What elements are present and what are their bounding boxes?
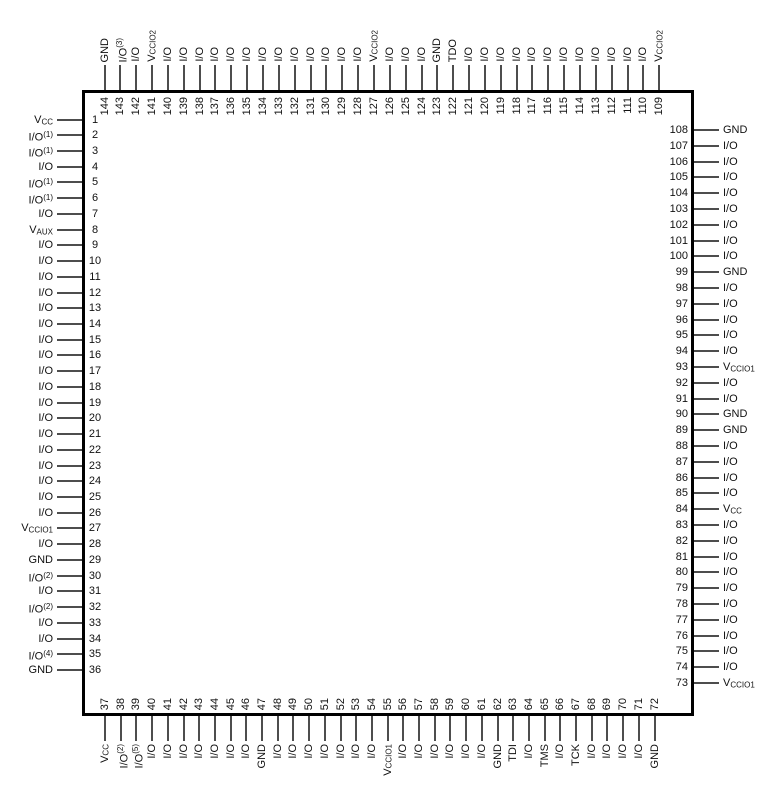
pin-79-lead [694,587,719,589]
pin-112-label: I/O [605,47,619,62]
pin-105-number: 105 [668,169,688,185]
pin-9-label: I/O [0,237,53,253]
pin-21-number: 21 [86,426,104,442]
pin-95-number: 95 [668,327,688,343]
pin-26-number: 26 [86,505,104,521]
pin-43-number: 43 [192,698,206,710]
pin-46-label: I/O [239,744,253,759]
pin-19-number: 19 [86,395,104,411]
pin-25-lead [57,496,82,498]
pin-95-lead [694,334,719,336]
pin-46-number: 46 [239,698,253,710]
pin-5-lead [57,181,82,183]
pin-83-number: 83 [668,517,688,533]
pin-69-lead [606,716,608,741]
pin-12-lead [57,292,82,294]
pin-8-lead [57,229,82,231]
pin-141-number: 141 [145,97,159,115]
pin-27-label: VCCIO1 [0,520,53,536]
pin-78-number: 78 [668,596,688,612]
pin-88-number: 88 [668,438,688,454]
pin-76-lead [694,635,719,637]
pin-106-number: 106 [668,154,688,170]
pin-70-lead [622,716,624,741]
pin-138-lead [199,65,201,90]
pin-49-lead [292,716,294,741]
pin-102-label: I/O [723,217,738,233]
pin-35-label: I/O(4) [0,646,53,662]
pin-9-lead [57,244,82,246]
pin-143-lead [119,65,121,90]
pin-58-lead [434,716,436,741]
pin-93-lead [694,366,719,368]
pin-41-number: 41 [161,698,175,710]
pin-109-number: 109 [652,97,666,115]
pin-66-number: 66 [553,698,567,710]
pin-86-number: 86 [668,470,688,486]
pin-124-label: I/O [415,47,429,62]
pin-62-label: GND [491,744,505,768]
pin-109-label: VCCIO2 [652,30,666,62]
pin-86-label: I/O [723,470,738,486]
pin-54-label: I/O [365,744,379,759]
pin-34-label: I/O [0,631,53,647]
pin-16-label: I/O [0,347,53,363]
pin-137-number: 137 [208,97,222,115]
pin-100-label: I/O [723,248,738,264]
pin-88-lead [694,445,719,447]
pin-48-label: I/O [271,744,285,759]
pin-15-label: I/O [0,332,53,348]
pin-79-number: 79 [668,580,688,596]
pin-73-label: VCCIO1 [723,675,755,691]
pin-92-label: I/O [723,375,738,391]
pin-75-label: I/O [723,643,738,659]
pin-61-lead [481,716,483,741]
pin-18-lead [57,386,82,388]
pin-32-label: I/O(2) [0,599,53,615]
pin-64-number: 64 [522,698,536,710]
pin-98-number: 98 [668,280,688,296]
pin-123-label: GND [430,38,444,62]
pin-93-number: 93 [668,359,688,375]
pin-56-lead [402,716,404,741]
pin-37-lead [104,716,106,741]
pin-84-number: 84 [668,501,688,517]
pin-42-label: I/O [177,744,191,759]
pin-53-label: I/O [349,744,363,759]
pin-124-number: 124 [415,97,429,115]
pin-135-number: 135 [240,97,254,115]
pin-63-lead [512,716,514,741]
pin-21-label: I/O [0,426,53,442]
pin-61-number: 61 [475,698,489,710]
pin-39-lead [135,716,137,741]
pin-5-number: 5 [86,174,104,190]
pin-24-number: 24 [86,473,104,489]
pin-85-lead [694,492,719,494]
pin-116-number: 116 [541,97,555,115]
pin-52-number: 52 [334,698,348,710]
pin-9-number: 9 [86,237,104,253]
pin-63-label: TDI [506,744,520,762]
pin-130-label: I/O [319,47,333,62]
pin-62-lead [497,716,499,741]
pin-139-lead [183,65,185,90]
pin-56-number: 56 [396,698,410,710]
pin-105-label: I/O [723,169,738,185]
pin-121-label: I/O [462,47,476,62]
pin-68-lead [591,716,593,741]
pin-66-label: I/O [553,744,567,759]
pin-77-label: I/O [723,612,738,628]
pin-143-label: I/O(3) [113,38,127,62]
pin-20-number: 20 [86,410,104,426]
pin-4-lead [57,166,82,168]
pin-70-number: 70 [616,698,630,710]
pin-107-lead [694,145,719,147]
pin-80-lead [694,571,719,573]
pin-104-label: I/O [723,185,738,201]
pin-98-label: I/O [723,280,738,296]
pin-17-label: I/O [0,363,53,379]
pin-37-number: 37 [98,698,112,710]
pin-30-label: I/O(2) [0,568,53,584]
pin-140-number: 140 [161,97,175,115]
pin-71-lead [638,716,640,741]
pin-111-label: I/O [621,47,635,62]
pin-71-number: 71 [632,698,646,710]
pin-51-number: 51 [318,698,332,710]
pin-118-number: 118 [510,97,524,115]
pin-68-label: I/O [585,744,599,759]
pin-74-label: I/O [723,659,738,675]
pin-46-lead [245,716,247,741]
pin-85-number: 85 [668,485,688,501]
pin-116-lead [547,65,549,90]
pin-33-number: 33 [86,615,104,631]
pin-91-lead [694,398,719,400]
pin-55-lead [387,716,389,741]
pin-33-lead [57,622,82,624]
pin-79-label: I/O [723,580,738,596]
pin-128-label: I/O [351,47,365,62]
pin-110-number: 110 [636,97,650,115]
pin-7-lead [57,213,82,215]
pin-100-lead [694,255,719,257]
pin-101-number: 101 [668,233,688,249]
pin-15-number: 15 [86,332,104,348]
pin-94-lead [694,350,719,352]
pin-38-label: I/O(2) [114,744,128,768]
pin-23-lead [57,465,82,467]
pin-131-lead [310,65,312,90]
pin-61-label: I/O [475,744,489,759]
pin-17-lead [57,370,82,372]
pin-20-label: I/O [0,410,53,426]
pin-36-number: 36 [86,662,104,678]
pin-144-lead [104,65,106,90]
pin-40-number: 40 [145,698,159,710]
pin-77-lead [694,619,719,621]
pin-13-number: 13 [86,300,104,316]
pin-130-lead [325,65,327,90]
pin-55-number: 55 [381,698,395,710]
pin-29-label: GND [0,552,53,568]
pin-99-number: 99 [668,264,688,280]
pin-2-lead [57,134,82,136]
pin-123-lead [436,65,438,90]
pin-14-lead [57,323,82,325]
pin-138-label: I/O [193,47,207,62]
pin-129-lead [341,65,343,90]
pin-122-lead [452,65,454,90]
pin-135-lead [246,65,248,90]
pin-99-label: GND [723,264,747,280]
pin-96-label: I/O [723,312,738,328]
pin-134-label: I/O [256,47,270,62]
pin-138-number: 138 [193,97,207,115]
pin-81-label: I/O [723,549,738,565]
pin-57-number: 57 [412,698,426,710]
pin-65-lead [544,716,546,741]
pin-40-label: I/O [145,744,159,759]
pin-86-lead [694,477,719,479]
pin-106-label: I/O [723,154,738,170]
pin-92-lead [694,382,719,384]
pin-29-number: 29 [86,552,104,568]
pin-22-number: 22 [86,442,104,458]
pin-109-lead [658,65,660,90]
pin-137-label: I/O [208,47,222,62]
pin-98-lead [694,287,719,289]
pin-63-number: 63 [506,698,520,710]
pin-142-number: 142 [129,97,143,115]
pin-54-lead [371,716,373,741]
pin-139-label: I/O [177,47,191,62]
pin-125-lead [405,65,407,90]
pin-102-lead [694,224,719,226]
pin-128-number: 128 [351,97,365,115]
pin-75-number: 75 [668,643,688,659]
pin-39-number: 39 [129,698,143,710]
pin-144-label: GND [98,38,112,62]
pin-127-label: VCCIO2 [367,30,381,62]
pin-133-label: I/O [272,47,286,62]
pin-140-label: I/O [161,47,175,62]
pin-87-number: 87 [668,454,688,470]
pin-17-number: 17 [86,363,104,379]
pin-103-number: 103 [668,201,688,217]
pin-55-label: VCCIO1 [381,744,395,776]
pin-68-number: 68 [585,698,599,710]
pin-45-number: 45 [224,698,238,710]
pin-43-lead [198,716,200,741]
pin-82-number: 82 [668,533,688,549]
pin-44-label: I/O [208,744,222,759]
pin-7-number: 7 [86,206,104,222]
pin-12-number: 12 [86,285,104,301]
pin-62-number: 62 [491,698,505,710]
pin-125-number: 125 [399,97,413,115]
pin-38-number: 38 [114,698,128,710]
pin-52-lead [340,716,342,741]
pin-47-label: GND [255,744,269,768]
pin-50-label: I/O [302,744,316,759]
pin-73-lead [694,682,719,684]
pin-27-lead [57,527,82,529]
pin-40-lead [151,716,153,741]
pin-13-label: I/O [0,300,53,316]
pin-131-label: I/O [304,47,318,62]
pin-101-label: I/O [723,233,738,249]
chip-body [82,90,694,716]
pin-89-number: 89 [668,422,688,438]
pin-120-number: 120 [478,97,492,115]
pin-84-lead [694,508,719,510]
pin-59-label: I/O [443,744,457,759]
pin-134-number: 134 [256,97,270,115]
pin-11-number: 11 [86,269,104,285]
pin-58-label: I/O [428,744,442,759]
pin-41-label: I/O [161,744,175,759]
pin-23-label: I/O [0,458,53,474]
pin-102-number: 102 [668,217,688,233]
pin-129-label: I/O [335,47,349,62]
pin-117-number: 117 [525,97,539,115]
pin-142-lead [135,65,137,90]
pin-114-label: I/O [573,47,587,62]
pin-92-number: 92 [668,375,688,391]
pin-80-number: 80 [668,564,688,580]
pin-101-lead [694,240,719,242]
pin-87-lead [694,461,719,463]
pin-64-lead [528,716,530,741]
pin-121-number: 121 [462,97,476,115]
pin-141-lead [151,65,153,90]
pin-41-lead [167,716,169,741]
pin-20-lead [57,417,82,419]
pin-119-lead [500,65,502,90]
pin-130-number: 130 [319,97,333,115]
pin-119-label: I/O [494,47,508,62]
pin-74-lead [694,666,719,668]
pin-72-lead [654,716,656,741]
pin-117-lead [531,65,533,90]
pin-136-lead [230,65,232,90]
pin-84-label: VCC [723,501,742,517]
pin-26-lead [57,512,82,514]
pin-134-lead [262,65,264,90]
pin-113-number: 113 [589,97,603,115]
pin-78-lead [694,603,719,605]
pin-31-lead [57,590,82,592]
pin-73-number: 73 [668,675,688,691]
pin-60-lead [465,716,467,741]
pin-8-number: 8 [86,222,104,238]
pin-31-number: 31 [86,583,104,599]
pin-114-lead [579,65,581,90]
pin-90-number: 90 [668,406,688,422]
pin-71-label: I/O [632,744,646,759]
pin-69-label: I/O [600,744,614,759]
pin-39-label: I/O(5) [129,744,143,768]
pin-44-lead [214,716,216,741]
pin-49-number: 49 [286,698,300,710]
pin-2-label: I/O(1) [0,127,53,143]
pin-48-lead [277,716,279,741]
pin-49-label: I/O [286,744,300,759]
pin-83-lead [694,524,719,526]
pin-77-number: 77 [668,612,688,628]
pin-125-label: I/O [399,47,413,62]
pin-26-label: I/O [0,505,53,521]
pin-97-lead [694,303,719,305]
pin-32-lead [57,606,82,608]
pin-107-label: I/O [723,138,738,154]
pin-11-lead [57,276,82,278]
pin-76-number: 76 [668,628,688,644]
pin-36-lead [57,669,82,671]
pin-115-lead [563,65,565,90]
pin-91-number: 91 [668,391,688,407]
pin-103-lead [694,208,719,210]
pin-133-number: 133 [272,97,286,115]
pin-127-number: 127 [367,97,381,115]
pin-10-lead [57,260,82,262]
pin-53-number: 53 [349,698,363,710]
pin-47-number: 47 [255,698,269,710]
pin-11-label: I/O [0,269,53,285]
pin-51-lead [324,716,326,741]
pin-65-number: 65 [538,698,552,710]
pin-111-number: 111 [621,97,635,114]
pin-25-label: I/O [0,489,53,505]
pin-82-label: I/O [723,533,738,549]
pin-24-label: I/O [0,473,53,489]
pin-18-number: 18 [86,379,104,395]
pin-64-label: I/O [522,744,536,759]
pin-52-label: I/O [334,744,348,759]
pin-121-lead [468,65,470,90]
pin-67-number: 67 [569,698,583,710]
pin-93-label: VCCIO1 [723,359,755,375]
pin-81-lead [694,556,719,558]
pin-60-label: I/O [459,744,473,759]
pin-58-number: 58 [428,698,442,710]
pin-132-number: 132 [288,97,302,115]
pin-122-label: TDO [446,39,460,62]
pin-87-label: I/O [723,454,738,470]
pin-74-number: 74 [668,659,688,675]
pin-53-lead [355,716,357,741]
pin-126-label: I/O [383,47,397,62]
pin-78-label: I/O [723,596,738,612]
pin-110-label: I/O [636,47,650,62]
pin-94-number: 94 [668,343,688,359]
pin-47-lead [261,716,263,741]
pin-16-number: 16 [86,347,104,363]
pin-19-label: I/O [0,395,53,411]
pin-32-number: 32 [86,599,104,615]
pin-88-label: I/O [723,438,738,454]
pin-12-label: I/O [0,285,53,301]
pin-135-label: I/O [240,47,254,62]
pin-4-label: I/O [0,159,53,175]
pin-48-number: 48 [271,698,285,710]
pin-72-label: GND [648,744,662,768]
pin-103-label: I/O [723,201,738,217]
